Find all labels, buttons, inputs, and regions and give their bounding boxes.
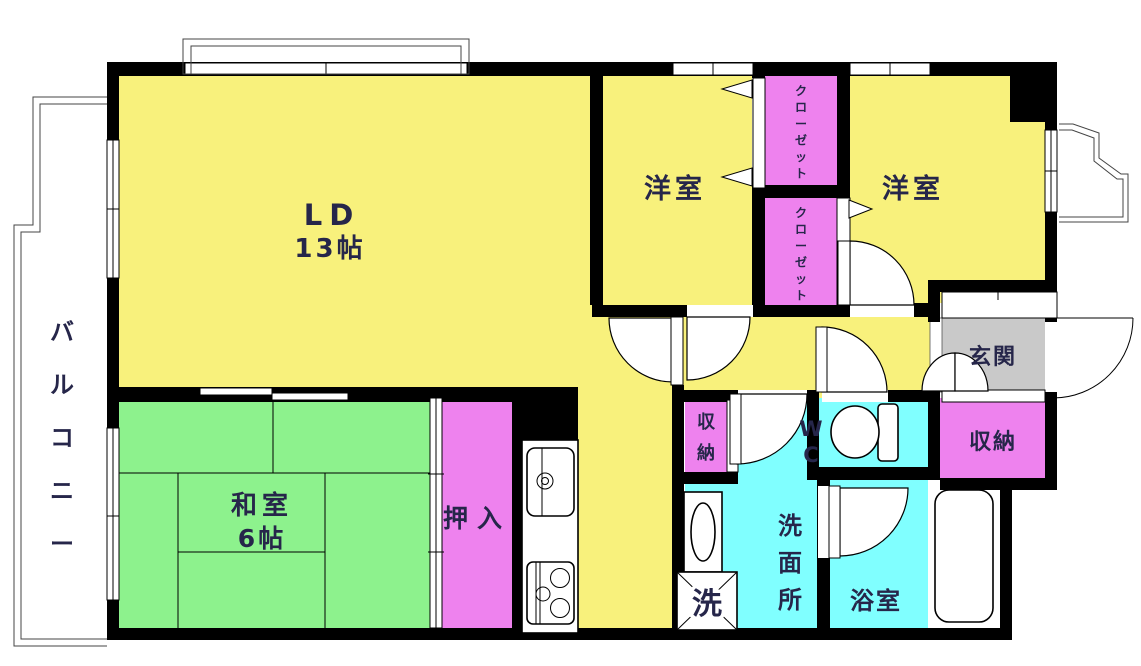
bay-window [1059,124,1128,222]
bathroom-doorway [818,486,830,558]
washitsu-sliding-door [200,388,272,395]
kitchen-sink [527,448,574,516]
entrance-label: 玄関 [969,344,1017,370]
living-dining-room [119,76,592,390]
washroom-door-leaf [730,394,741,464]
ld-size-label: 13帖 [294,234,365,264]
japanese-room-label: 和室 [231,490,293,521]
oshiire-label: 押入 [443,504,511,533]
japanese-room-size-label: 6帖 [238,524,286,553]
toilet-tank [878,404,898,461]
toilet-door-leaf [816,327,827,392]
front-door-opening [1045,322,1057,392]
ld-label: LD [304,198,361,232]
floor-plan-svg: 洗 LD 13帖 洋室 洋室 クローゼット クローゼット 和室 6帖 押入 バル… [0,0,1141,666]
western-right-doorway [850,305,914,317]
floor-plan: 洗 LD 13帖 洋室 洋室 クローゼット クローゼット 和室 6帖 押入 バル… [0,0,1141,666]
bathtub [935,490,993,622]
western-left-label: 洋室 [644,173,706,205]
storage-entrance-label: 収納 [969,429,1017,455]
front-door-swing [1053,318,1133,398]
western-left-doorway [687,305,753,317]
washroom-label: 洗面所 [778,512,802,614]
shoe-cabinet [942,292,1057,318]
western-room-right-east [1010,122,1045,303]
storage-entrance-door [942,390,1045,402]
washing-machine: 洗 [677,572,737,630]
closet-upper-door [753,78,765,188]
ld-door-leaf [671,317,683,385]
washing-machine-label: 洗 [692,587,722,622]
bathroom-label: 浴室 [850,587,902,615]
western-right-label: 洋室 [882,173,944,205]
toilet-bowl [831,406,879,458]
balcony-label: バルコニー [50,318,74,558]
bathroom-door-leaf [829,486,840,558]
western-right-door-leaf [838,241,850,305]
